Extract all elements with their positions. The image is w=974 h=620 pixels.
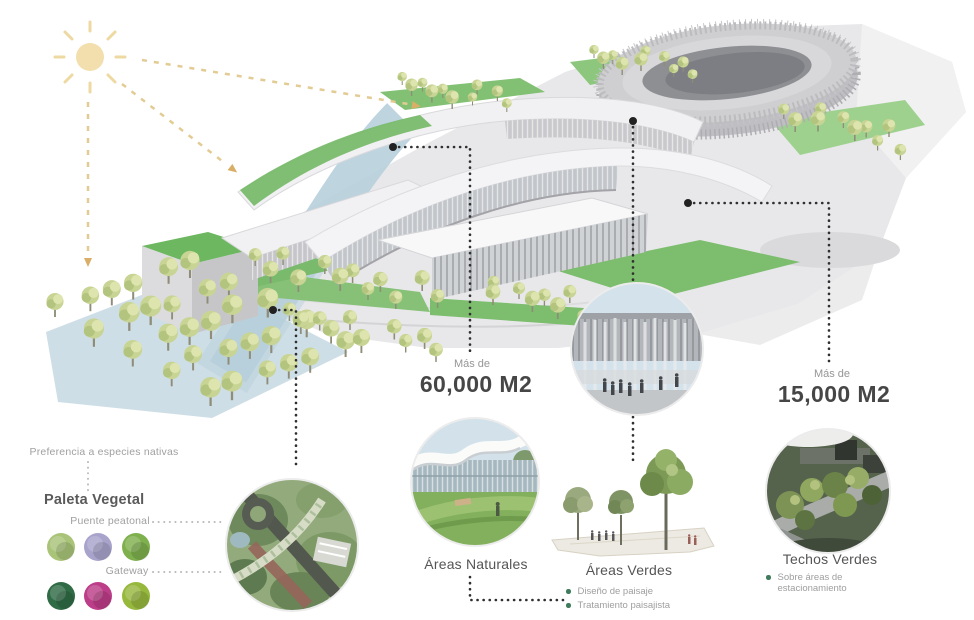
aerial-plan-photo <box>222 475 364 615</box>
bullet-item: Sobre áreas de estacionamiento <box>766 572 862 595</box>
plant-swatch <box>84 533 112 561</box>
bullet-dot-icon <box>566 589 571 594</box>
green-areas-vignette <box>552 449 714 556</box>
bullet-dot-icon <box>566 603 571 608</box>
palette-group-label-gateway: Gateway <box>106 565 149 577</box>
bullet-item: Diseño de paisaje <box>566 586 670 597</box>
verdes-label: Áreas Verdes <box>586 562 672 578</box>
naturales-more-label: Más de <box>454 358 490 370</box>
plant-swatch <box>84 582 112 610</box>
palette-group-label-puente: Puente peatonal <box>70 515 149 527</box>
bullet-item: Tratamiento paisajista <box>566 600 670 611</box>
plant-swatch <box>47 582 75 610</box>
naturales-value: 60,000 M2 <box>420 371 532 398</box>
palette-title: Paleta Vegetal <box>44 492 144 508</box>
native-species-note: Preferencia a especies nativas <box>30 446 179 458</box>
bullet-dot-icon <box>766 575 771 580</box>
naturales-bullet-list: Diseño de paisaje Tratamiento paisajista <box>566 586 670 615</box>
bullet-text: Diseño de paisaje <box>578 586 654 597</box>
natural-areas-photo <box>408 415 547 548</box>
sun-icon <box>55 22 125 92</box>
techos-bullet-list: Sobre áreas de estacionamiento <box>766 572 862 598</box>
site-illustration <box>0 0 974 620</box>
plant-swatch <box>47 533 75 561</box>
bullet-text: Sobre áreas de estacionamiento <box>778 572 862 595</box>
techos-value: 15,000 M2 <box>778 381 890 408</box>
bullet-text: Tratamiento paisajista <box>578 600 671 611</box>
masterplan-diagram: Preferencia a especies nativas Paleta Ve… <box>0 0 974 620</box>
naturales-label: Áreas Naturales <box>424 556 527 572</box>
plant-swatch <box>122 582 150 610</box>
techos-label: Techos Verdes <box>783 551 877 567</box>
plant-swatch <box>122 533 150 561</box>
techos-more-label: Más de <box>814 368 850 380</box>
